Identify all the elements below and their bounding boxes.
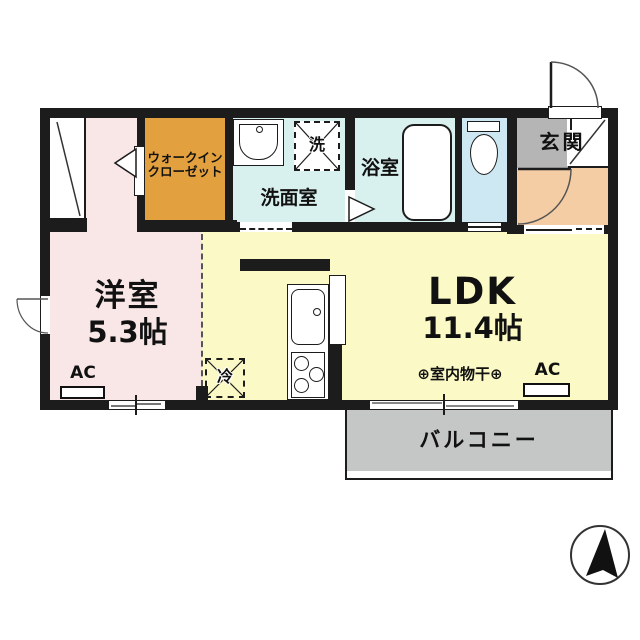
wall-closet-bottom bbox=[50, 218, 87, 232]
ldk-size-label: 11.4帖 bbox=[390, 312, 555, 345]
wall-toilet-left bbox=[455, 118, 462, 232]
balcony-label: バルコニー bbox=[419, 428, 539, 452]
wall-right bbox=[608, 108, 618, 410]
bedroom-side-window bbox=[41, 296, 50, 334]
bedroom-size-label: 5.3帖 bbox=[50, 316, 205, 349]
washroom-label: 洗面室 bbox=[233, 188, 345, 210]
kitchen-sink bbox=[291, 289, 325, 345]
toilet-door-gap bbox=[468, 223, 501, 231]
floor-plan: バルコニー ウォークイン クローゼット 洗面室 洗 浴室 玄関 洋室 5.3帖 … bbox=[0, 0, 640, 640]
vanity-faucet bbox=[256, 126, 263, 133]
corner-closet bbox=[50, 118, 86, 218]
kitchen-faucet bbox=[313, 308, 321, 316]
entrance-step-line bbox=[568, 166, 608, 168]
washroom-door-gap bbox=[240, 222, 292, 232]
entrance-door-sill bbox=[548, 106, 602, 119]
balcony: バルコニー bbox=[345, 408, 613, 480]
bath-door-gap bbox=[345, 190, 355, 222]
indoor-drying-label: ⊕室内物干⊕ bbox=[395, 366, 525, 383]
stove-burner-3 bbox=[294, 378, 309, 393]
wall-wic-left-lower bbox=[137, 196, 145, 222]
wall-top bbox=[40, 108, 618, 118]
wall-wic-left-upper bbox=[137, 118, 145, 148]
washer-label: 洗 bbox=[294, 136, 340, 154]
wall-left bbox=[40, 108, 50, 410]
wall-kitchen-partition bbox=[329, 345, 342, 400]
wall-entrance-left bbox=[507, 118, 517, 234]
entrance-label: 玄関 bbox=[517, 131, 608, 154]
ldk-label: LDK bbox=[390, 271, 555, 314]
wall-kitchen-back bbox=[240, 259, 330, 271]
bedroom-window-tick bbox=[135, 395, 137, 415]
hallway-ldk-opening bbox=[524, 225, 604, 234]
wall-wic-bottom bbox=[137, 220, 237, 232]
wic-label: ウォークイン クローゼット bbox=[143, 151, 227, 180]
bathtub bbox=[402, 124, 452, 221]
entrance-door-swing bbox=[551, 62, 598, 108]
ac-unit-bedroom bbox=[60, 386, 105, 399]
wall-bath-bottom bbox=[345, 222, 462, 232]
stove-burner-1 bbox=[294, 356, 309, 371]
bath-label: 浴室 bbox=[352, 158, 408, 180]
ac-unit-ldk bbox=[523, 383, 570, 397]
bedroom-bottom-window bbox=[109, 401, 165, 409]
fridge-label: 冷 bbox=[205, 368, 245, 386]
kitchen-side-counter bbox=[329, 275, 346, 345]
toilet-tank bbox=[467, 121, 500, 132]
wic-label-line1: ウォークイン bbox=[143, 151, 227, 165]
hallway-area bbox=[517, 168, 608, 226]
bedroom-label: 洋室 bbox=[50, 279, 205, 315]
ac-bedroom-label: AC bbox=[60, 364, 106, 384]
balcony-door-tick bbox=[443, 394, 445, 415]
wic-label-line2: クローゼット bbox=[143, 165, 227, 179]
stove-burner-2 bbox=[309, 367, 324, 382]
compass-north-icon bbox=[571, 526, 629, 584]
ac-ldk-label: AC bbox=[524, 361, 571, 381]
